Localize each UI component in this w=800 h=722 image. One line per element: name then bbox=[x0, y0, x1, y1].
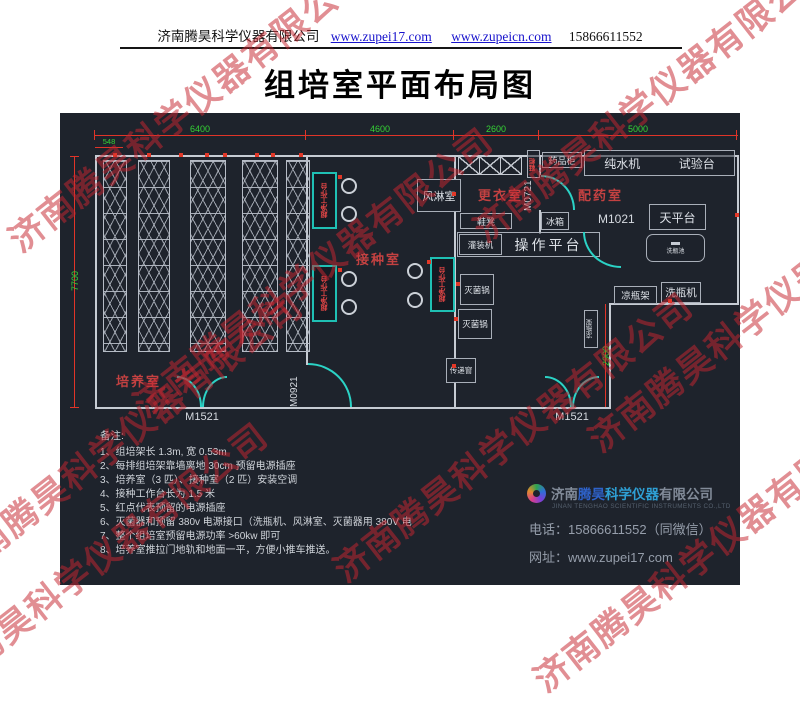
equip-shoe-bench: 鞋凳 bbox=[460, 213, 512, 229]
equip-filling-machine: 灌装机 bbox=[459, 234, 502, 255]
door-arc-m1021 bbox=[583, 232, 621, 268]
stool bbox=[341, 178, 357, 194]
dim-4600: 4600 bbox=[360, 124, 400, 134]
dim-6400: 6400 bbox=[180, 124, 220, 134]
door-label-m1021: M1021 bbox=[598, 212, 635, 226]
culture-rack bbox=[103, 160, 127, 352]
footer-phone: 电话：15866611552（同微信） bbox=[529, 519, 737, 538]
door-arc-m1521-right bbox=[572, 376, 599, 407]
note-item: 5、红点代表预留的电源插座 bbox=[100, 499, 226, 514]
room-label-culture: 培养室 bbox=[116, 371, 161, 390]
dim-line-top bbox=[95, 135, 738, 136]
footer-website[interactable]: 网址：www.zupei17.com bbox=[529, 547, 737, 566]
power-outlet-dot bbox=[668, 299, 672, 303]
power-outlet-dot bbox=[113, 153, 117, 157]
power-outlet-dot bbox=[299, 153, 303, 157]
clean-bench: 超净工作台 bbox=[312, 265, 337, 322]
dim-tick bbox=[538, 130, 539, 140]
shoe-cabinet-label: 鞋柜 bbox=[529, 158, 539, 171]
door-arc-m0921 bbox=[308, 363, 352, 407]
door-arc-m1521-right bbox=[545, 376, 572, 407]
equip-bottle-rack-v: 凉瓶架 bbox=[584, 310, 598, 348]
link-zupeicn[interactable]: www.zupeicn.com bbox=[451, 29, 551, 44]
equip-top-bench: 纯水机 试验台 bbox=[584, 150, 735, 176]
floor-plan-canvas: 6400 4600 2600 5000 548 7700 2900 培养室 接种… bbox=[60, 113, 740, 585]
equip-sterilizer: 灭菌锅 bbox=[460, 274, 494, 305]
power-outlet-dot bbox=[338, 268, 342, 272]
note-item: 8、培养室推拉门地轨和地面一平，方便小推车推送。 bbox=[100, 541, 336, 556]
power-outlet-dot bbox=[179, 153, 183, 157]
bottle-sink-label: 洗瓶池 bbox=[666, 246, 684, 255]
brand-name-en: JINAN TENGHAO SCIENTIFIC INSTRUMENTS CO.… bbox=[552, 503, 737, 510]
brand-core: 腾昊 bbox=[578, 487, 605, 502]
note-item: 1、组培架长 1.3m, 宽 0.53m bbox=[100, 443, 227, 458]
power-outlet-dot bbox=[456, 282, 460, 286]
equip-transfer-window: 传递窗 bbox=[446, 358, 476, 383]
note-item: 6、灭菌器和预留 380v 电源接口（洗瓶机、风淋室、灭菌器用 380V 电 bbox=[100, 513, 412, 528]
notes-heading: 备注: bbox=[100, 428, 124, 443]
power-outlet-dot bbox=[271, 153, 275, 157]
dim-548: 548 bbox=[98, 137, 120, 146]
dim-2600: 2600 bbox=[476, 124, 516, 134]
power-outlet-dot bbox=[255, 153, 259, 157]
bottle-rack-label: 凉瓶架 bbox=[586, 319, 596, 339]
brand-suffix: 有限公司 bbox=[659, 487, 713, 502]
wall-right bbox=[737, 155, 739, 305]
brand-mid: 科学仪器 bbox=[605, 487, 659, 502]
room-label-inoculation: 接种室 bbox=[356, 249, 401, 268]
culture-rack bbox=[286, 160, 310, 352]
note-item: 2、每排组培架靠墙离地 30cm 预留电源插座 bbox=[100, 457, 296, 472]
culture-rack bbox=[190, 160, 226, 352]
locker-cabinet bbox=[479, 156, 501, 175]
door-arc-m0721 bbox=[541, 175, 575, 210]
equip-test-bench: 试验台 bbox=[679, 155, 715, 172]
dim-tick bbox=[70, 156, 79, 157]
wall-inoculation-right bbox=[454, 383, 456, 407]
page-title: 组培室平面布局图 bbox=[0, 60, 800, 105]
door-arc-m1521-left bbox=[177, 376, 202, 407]
tap-icon bbox=[671, 242, 680, 245]
clean-bench: 超净工作台 bbox=[312, 172, 337, 229]
equip-medicine-cabinet: 药品柜 bbox=[542, 152, 582, 168]
locker-cabinet bbox=[458, 156, 480, 175]
phone-number: 15866611552 bbox=[569, 29, 643, 44]
stool bbox=[407, 263, 423, 279]
locker-cabinet bbox=[500, 156, 522, 175]
dim-tick bbox=[70, 407, 79, 408]
culture-rack bbox=[242, 160, 278, 352]
header-divider bbox=[120, 47, 682, 49]
door-arc-m1521-left bbox=[202, 376, 227, 407]
dim-5000: 5000 bbox=[618, 124, 658, 134]
wall-bottom bbox=[95, 407, 611, 409]
equip-bottle-sink: 洗瓶池 bbox=[646, 234, 705, 262]
brand-prefix: 济南 bbox=[551, 487, 578, 502]
dim-tick bbox=[305, 130, 306, 140]
note-item: 3、培养室（3 匹）、接种室（2 匹）安装空调 bbox=[100, 471, 297, 486]
door-label-m0921: M0921 bbox=[289, 363, 300, 407]
clean-bench: 超净工作台 bbox=[430, 257, 455, 312]
power-outlet-dot bbox=[452, 192, 456, 196]
link-zupei17[interactable]: www.zupei17.com bbox=[331, 29, 432, 44]
dim-7700: 7700 bbox=[70, 268, 80, 294]
equip-sterilizer: 灭菌锅 bbox=[458, 309, 492, 339]
room-label-changing: 更衣室 bbox=[478, 185, 523, 204]
dim-tick bbox=[94, 130, 95, 140]
footer-brand-card: 济南腾昊科学仪器有限公司 JINAN TENGHAO SCIENTIFIC IN… bbox=[527, 483, 737, 566]
company-name: 济南腾昊科学仪器有限公司 bbox=[157, 29, 319, 44]
stool bbox=[341, 299, 357, 315]
wall-left bbox=[95, 155, 97, 409]
culture-rack bbox=[138, 160, 170, 352]
dim-tick bbox=[453, 130, 454, 140]
door-label-m1521-left: M1521 bbox=[177, 411, 227, 423]
company-logo-icon bbox=[527, 484, 546, 503]
page: { "header": { "company": "济南腾昊科学仪器有限公司",… bbox=[0, 0, 800, 600]
power-outlet-dot bbox=[147, 153, 151, 157]
note-item: 7、整个组培室预留电源功率 >60kw 即可 bbox=[100, 527, 280, 542]
power-outlet-dot bbox=[735, 213, 739, 217]
page-header: 济南腾昊科学仪器有限公司 www.zupei17.com www.zupeicn… bbox=[0, 25, 800, 45]
note-item: 4、接种工作台长为 1.5 米 bbox=[100, 485, 215, 500]
power-outlet-dot bbox=[427, 260, 431, 264]
stool bbox=[341, 206, 357, 222]
wall-lower-right bbox=[609, 303, 611, 409]
operation-platform-label: 操作平台 bbox=[515, 235, 583, 255]
door-label-m0721: M0721 bbox=[523, 171, 534, 211]
equip-balance-table: 天平台 bbox=[649, 204, 706, 230]
clean-bench-label: 超净工作台 bbox=[320, 183, 330, 218]
clean-bench-label: 超净工作台 bbox=[438, 267, 448, 302]
brand-name-cn: 济南腾昊科学仪器有限公司 bbox=[551, 483, 713, 503]
room-label-dispensing: 配药室 bbox=[578, 185, 623, 204]
power-outlet-dot bbox=[205, 153, 209, 157]
stool bbox=[341, 271, 357, 287]
equip-bottle-washer: 洗瓶机 bbox=[661, 282, 701, 303]
power-outlet-dot bbox=[452, 364, 456, 368]
wall-inoculation-right bbox=[454, 157, 456, 180]
equip-fridge: 冰箱 bbox=[541, 212, 569, 230]
door-label-m1521-right: M1521 bbox=[545, 411, 599, 423]
power-outlet-dot bbox=[223, 153, 227, 157]
dim-tick bbox=[736, 130, 737, 140]
clean-bench-label: 超净工作台 bbox=[320, 276, 330, 311]
dim-line-548 bbox=[95, 147, 123, 148]
equip-water-purifier: 纯水机 bbox=[604, 155, 640, 172]
power-outlet-dot bbox=[338, 175, 342, 179]
stool bbox=[407, 292, 423, 308]
equip-bottle-rack-h: 凉瓶架 bbox=[614, 286, 657, 304]
power-outlet-dot bbox=[454, 317, 458, 321]
